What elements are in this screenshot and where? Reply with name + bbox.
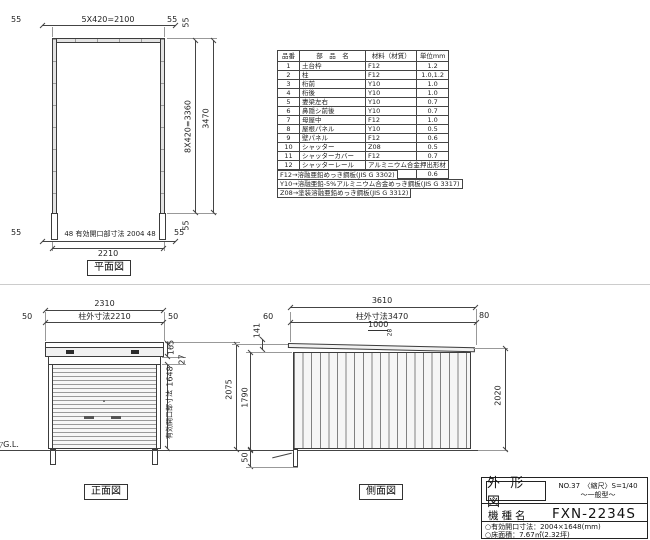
front-vent-right [131, 350, 139, 354]
drawing-sheet: 55 5X420=2100 55 55 8X420=3360 3470 55 5… [0, 0, 650, 540]
dim-label: 60 [263, 312, 273, 322]
table-cell: シャッターカバー [300, 152, 366, 161]
table-cell: 10 [278, 143, 300, 152]
table-cell: Y10 [366, 125, 417, 134]
table-cell: 0.7 [417, 107, 449, 116]
spec-floor-area: ○床面積：7.67㎡(2.32坪) [485, 532, 601, 540]
table-cell: 8 [278, 125, 300, 134]
table-cell: 1.0 [417, 89, 449, 98]
table-cell: Y10 [366, 80, 417, 89]
dim-label: 27 [177, 330, 188, 390]
table-row: 10シャッターZ080.5 [278, 143, 449, 152]
front-view-title: 正面図 [84, 484, 128, 500]
front-leg-left [50, 449, 56, 465]
shutter-handle-left [84, 416, 94, 419]
plan-right-dim-line-outer [213, 40, 214, 213]
extension-line [167, 213, 217, 214]
table-cell: F12 [366, 116, 417, 125]
extension-line [473, 348, 508, 349]
table-cell: 1.0 [417, 80, 449, 89]
model-name-value: FXN-2234S [552, 506, 636, 522]
table-cell: 0.7 [417, 152, 449, 161]
side-total-width-dim-line [290, 307, 476, 308]
table-cell: シャッターレール [300, 161, 366, 170]
slope-rise-label: 28 [385, 303, 396, 363]
table-cell: 妻梁左右 [300, 98, 366, 107]
shutter-handle-right [111, 416, 121, 419]
dim-label: 3470 [201, 89, 212, 149]
parts-table-header-row: 品番部 品 名材料（材質）単位mm [278, 51, 449, 62]
table-cell: 1.0,1.2 [417, 71, 449, 80]
sheet-divider-line [0, 284, 650, 285]
front-shutter-door [52, 364, 157, 449]
side-roof [288, 343, 475, 352]
table-cell: 1.0 [417, 116, 449, 125]
table-cell: 桁前 [300, 80, 366, 89]
drawing-number-scale: NO.37 〈縮尺〉S=1/40 〜一般型〜 [550, 482, 646, 500]
extension-line [164, 27, 165, 37]
plan-wall-top [52, 38, 165, 43]
front-total-width-dim-line [45, 310, 164, 311]
table-cell: 6 [278, 107, 300, 116]
table-cell: 4 [278, 89, 300, 98]
dim-label: 8X420=3360 [183, 97, 194, 157]
parts-table-body: 1土台枠F121.22柱F121.0,1.23桁前Y101.04桁後Y101.0… [278, 62, 449, 179]
table-cell: 母屋中 [300, 116, 366, 125]
table-cell: F12 [366, 152, 417, 161]
drawing-no-scale-text: NO.37 〈縮尺〉S=1/40 [550, 482, 646, 491]
table-cell: 9 [278, 134, 300, 143]
table-cell: 3 [278, 80, 300, 89]
front-vent-left [66, 350, 74, 354]
side-back-height-dim-line [505, 348, 506, 450]
plan-top-dim-line [42, 25, 176, 26]
table-cell: 桁後 [300, 89, 366, 98]
side-post-below [293, 449, 298, 467]
table-header-cell: 部 品 名 [300, 51, 366, 62]
title-block: 外 形 図 NO.37 〈縮尺〉S=1/40 〜一般型〜 機種名 FXN-223… [481, 477, 648, 539]
table-cell: Y10 [366, 89, 417, 98]
table-row: 4桁後Y101.0 [278, 89, 449, 98]
table-row: 5妻梁左右Y100.7 [278, 98, 449, 107]
front-post-width-dim-line [45, 322, 164, 323]
table-cell: Z08 [366, 143, 417, 152]
total-height-dim-line [236, 344, 237, 450]
dim-label: 55 [174, 228, 184, 238]
dim-label: 50 [22, 312, 32, 322]
drawing-type-note: 〜一般型〜 [550, 491, 646, 500]
table-cell: 7 [278, 116, 300, 125]
table-cell: 屋根パネル [300, 125, 366, 134]
table-row: 1土台枠F121.2 [278, 62, 449, 71]
dim-label: 55 [11, 15, 21, 25]
extension-line [478, 450, 508, 451]
front-leg-right [152, 449, 158, 465]
side-view-title: 側面図 [359, 484, 403, 500]
title-block-divider [482, 503, 647, 504]
material-notes: F12→溶融亜鉛めっき鋼板(JIS G 3302)Y10→溶融亜鉛-5%アルミニ… [277, 171, 463, 198]
extension-line [246, 352, 292, 353]
table-row: 8屋根パネルY100.5 [278, 125, 449, 134]
parts-table: 品番部 品 名材料（材質）単位mm 1土台枠F121.22柱F121.0,1.2… [277, 50, 449, 179]
table-cell: 鼻隠シ前後 [300, 107, 366, 116]
table-cell: 12 [278, 161, 300, 170]
drawing-type-label: 外 形 図 [486, 481, 546, 501]
table-cell: 0.7 [417, 98, 449, 107]
table-cell: 0.5 [417, 143, 449, 152]
table-cell: F12 [366, 134, 417, 143]
dim-label: 1790 [240, 368, 251, 428]
table-cell: 11 [278, 152, 300, 161]
dim-label: 2310 [45, 299, 164, 309]
dim-label: 2020 [493, 366, 504, 426]
plan-view-title: 平面図 [87, 260, 131, 276]
dim-label: 柱外寸法2210 [45, 312, 164, 322]
table-cell: F12 [366, 62, 417, 71]
dim-label: 48 有効開口部寸法 2004 48 [54, 229, 166, 239]
dim-label: 55 [181, 0, 192, 53]
material-note: F12→溶融亜鉛めっき鋼板(JIS G 3302) [277, 170, 398, 180]
material-note: Y10→溶融亜鉛-5%アルミニウム合金めっき鋼板(JIS G 3317) [277, 179, 463, 189]
table-header-cell: 品番 [278, 51, 300, 62]
plan-wall-right [160, 38, 165, 214]
table-row: 3桁前Y101.0 [278, 80, 449, 89]
side-base-mark [272, 453, 292, 459]
table-cell: 壁パネル [300, 134, 366, 143]
table-row: 9壁パネルF120.6 [278, 134, 449, 143]
table-row: 2柱F121.0,1.2 [278, 71, 449, 80]
table-cell: Y10 [366, 107, 417, 116]
dim-label: 3610 [288, 296, 476, 306]
plan-wall-left [52, 38, 57, 214]
dim-label: 80 [479, 311, 489, 321]
material-note: Z08→塗装溶融亜鉛めっき鋼板(JIS G 3312) [277, 188, 411, 198]
table-row: 7母屋中F121.0 [278, 116, 449, 125]
extension-line [246, 467, 298, 468]
table-cell: 1.2 [417, 62, 449, 71]
table-cell: 土台枠 [300, 62, 366, 71]
dim-label: 有効開口部寸法 [165, 385, 176, 445]
table-cell: 0.6 [417, 134, 449, 143]
dim-label: 55 [181, 196, 192, 256]
dim-label: 5X420=2100 [60, 15, 156, 25]
table-header-cell: 材料（材質） [366, 51, 417, 62]
spec-lines: ○有効開口寸法：2004×1648(mm) ○床面積：7.67㎡(2.32坪) [485, 524, 601, 539]
table-cell: Y10 [366, 98, 417, 107]
table-cell: シャッター [300, 143, 366, 152]
shutter-lock [103, 400, 105, 402]
table-cell: 2 [278, 71, 300, 80]
extension-line [52, 27, 53, 37]
table-cell: 柱 [300, 71, 366, 80]
table-cell: 0.5 [417, 125, 449, 134]
table-cell: 1 [278, 62, 300, 71]
table-header-cell: 単位mm [417, 51, 449, 62]
side-wall [293, 352, 471, 449]
table-cell: 5 [278, 98, 300, 107]
table-row: 11シャッターカバーF120.7 [278, 152, 449, 161]
extension-line [476, 309, 477, 345]
table-cell: F12 [366, 71, 417, 80]
ground-level-label: ▽G.L. [0, 440, 19, 450]
dim-label: 55 [167, 15, 177, 25]
dim-label: 2075 [224, 360, 235, 420]
dim-label: 55 [11, 228, 21, 238]
dim-label: 50 [240, 428, 251, 488]
table-row: 12シャッターレールアルミニウム合金押出形材 [278, 161, 449, 170]
table-cell: アルミニウム合金押出形材 [366, 161, 449, 170]
title-block-divider [482, 521, 647, 522]
dim-label: 2210 [60, 249, 156, 259]
table-row: 6鼻隠シ前後Y100.7 [278, 107, 449, 116]
plan-right-dim-line-inner [195, 40, 196, 213]
plan-bottom-dim-line [42, 241, 176, 242]
